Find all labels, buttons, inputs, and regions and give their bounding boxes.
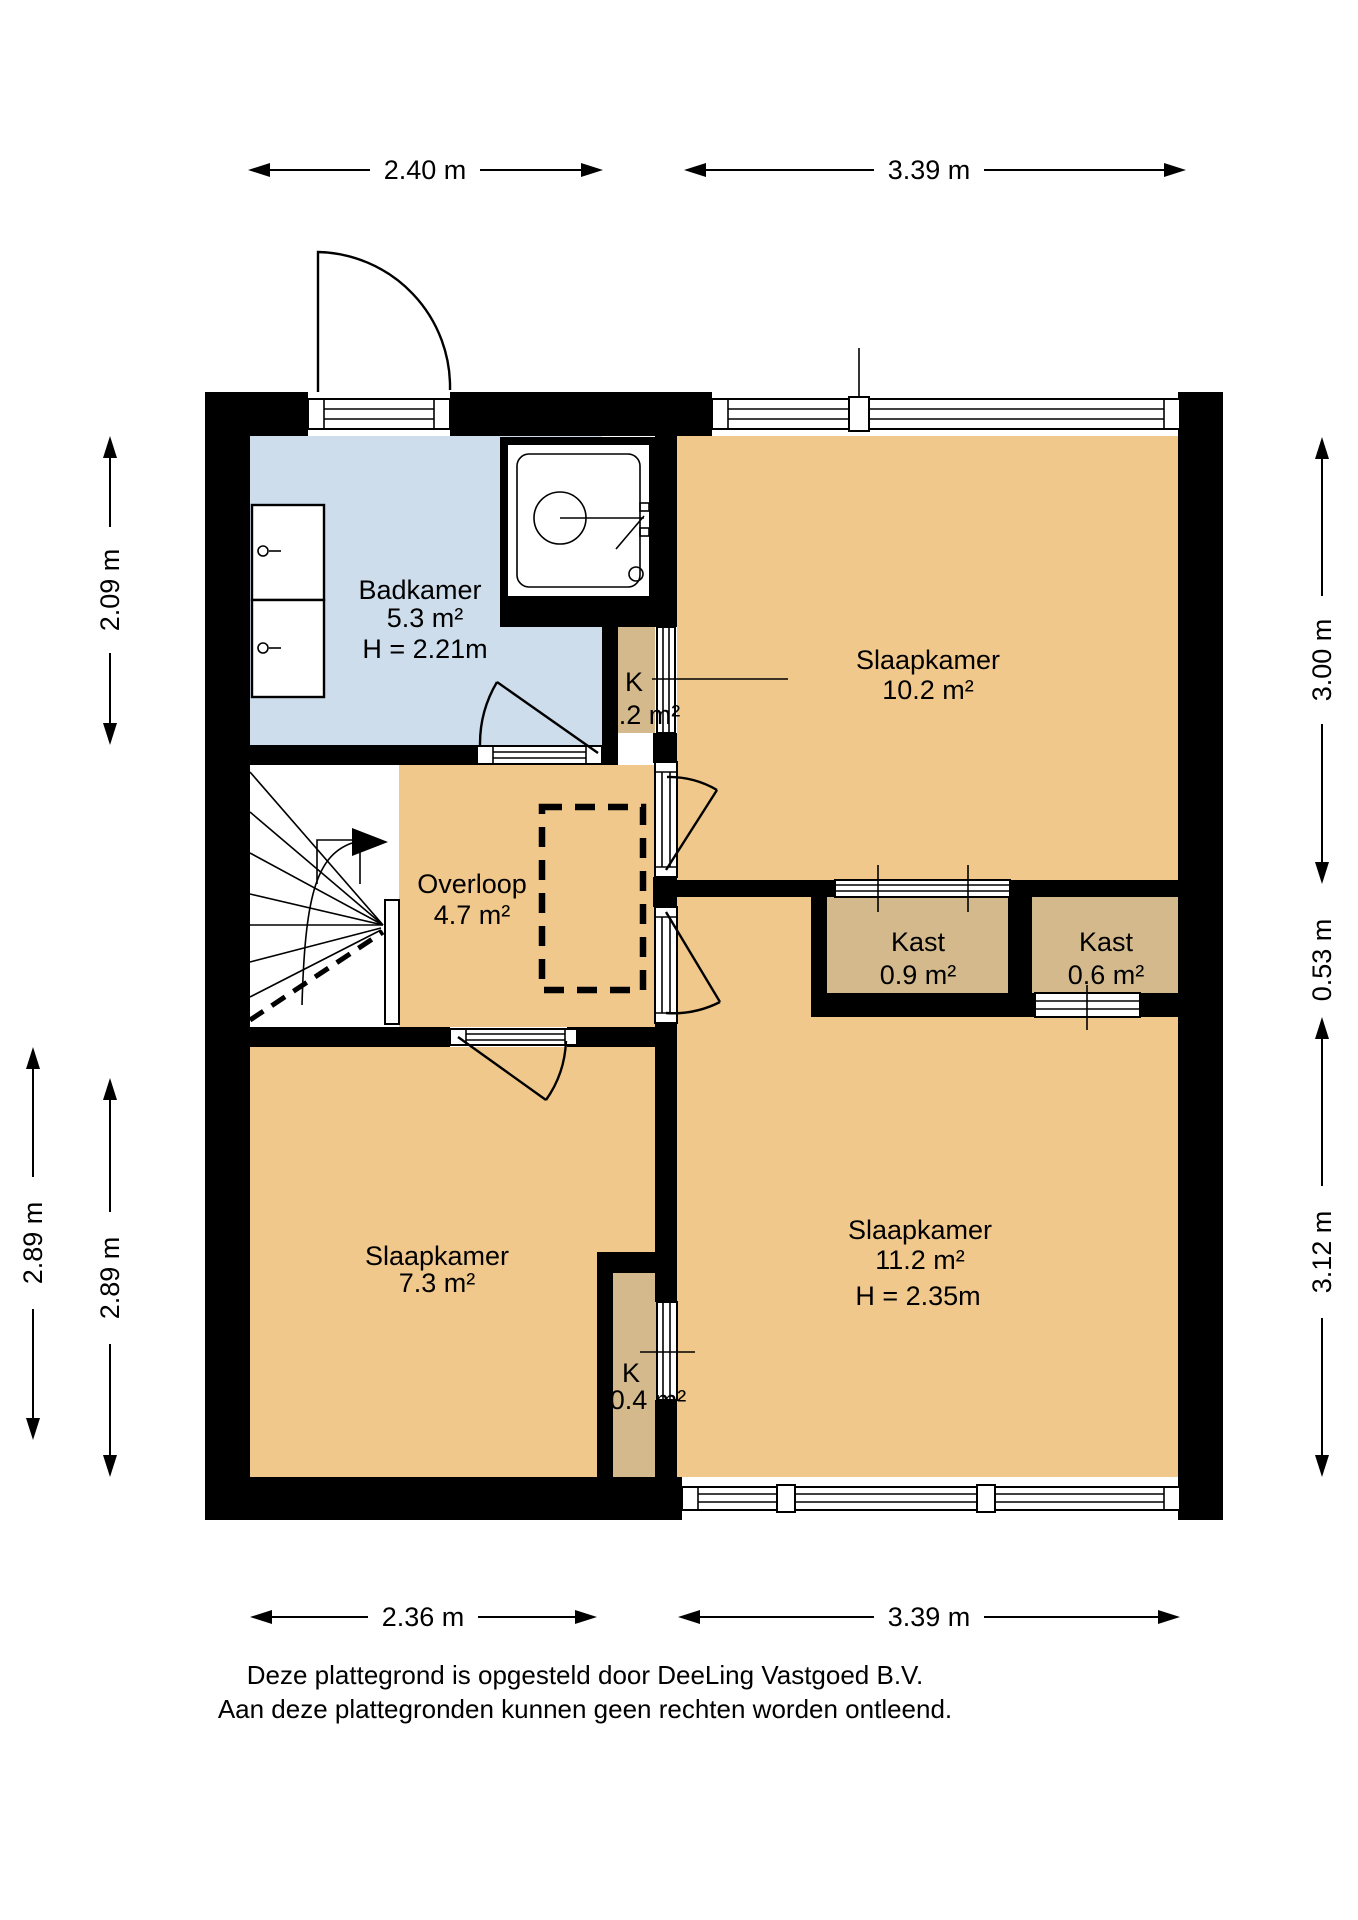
room-label-slaapkamer-rechtsboven: Slaapkamer <box>856 645 1000 675</box>
room-label-k-onder: K <box>622 1358 640 1388</box>
room-area-slaapkamer-linksonder: 7.3 m² <box>399 1268 476 1298</box>
stair-handrail <box>385 900 399 1024</box>
room-area-slaapkamer-rechtsboven: 10.2 m² <box>882 675 974 705</box>
room-label-kast-klein: Kast <box>1079 927 1134 957</box>
dimension-label: 2.36 m <box>382 1602 465 1632</box>
floor-plan: Badkamer 5.3 m² H = 2.21m Slaapkamer 10.… <box>0 0 1358 1920</box>
room-label-k-boven: K <box>625 667 643 697</box>
shower <box>500 437 657 604</box>
room-label-slaapkamer-linksonder: Slaapkamer <box>365 1241 509 1271</box>
washing-machine-stack <box>252 505 324 697</box>
dimension-label: 3.39 m <box>888 1602 971 1632</box>
dimension-label: 3.39 m <box>888 155 971 185</box>
room-label-slaapkamer-rechtsonder: Slaapkamer <box>848 1215 992 1245</box>
room-area-k-onder: 0.4 m² <box>610 1385 687 1415</box>
dimension-label: 2.09 m <box>95 549 125 632</box>
dimension-label: 0.53 m <box>1307 919 1337 1002</box>
room-label-kast-groot: Kast <box>891 927 946 957</box>
room-area-badkamer: 5.3 m² <box>387 603 464 633</box>
room-area-overloop: 4.7 m² <box>434 900 511 930</box>
stairwell-floor <box>250 765 399 1027</box>
room-label-badkamer: Badkamer <box>358 575 481 605</box>
dimension-label: 2.89 m <box>18 1202 48 1285</box>
dimension-label: 2.89 m <box>95 1237 125 1320</box>
room-area-kast-klein: 0.6 m² <box>1068 960 1145 990</box>
dimension-label: 3.00 m <box>1307 619 1337 702</box>
dimension-label: 2.40 m <box>384 155 467 185</box>
dimension-label: 3.12 m <box>1307 1211 1337 1294</box>
room-height-slaapkamer-rechtsonder: H = 2.35m <box>855 1281 980 1311</box>
footer-line-1: Deze plattegrond is opgesteld door DeeLi… <box>247 1660 923 1690</box>
window-bottom <box>682 1485 1180 1512</box>
room-area-kast-groot: 0.9 m² <box>880 960 957 990</box>
room-area-slaapkamer-rechtsonder: 11.2 m² <box>875 1245 965 1275</box>
threshold-badkamer-door <box>477 746 602 764</box>
threshold-slaapkamer3-door <box>450 1029 577 1045</box>
footer-line-2: Aan deze plattegronden kunnen geen recht… <box>218 1694 952 1724</box>
room-label-overloop: Overloop <box>417 869 527 899</box>
room-area-k-boven: 0.2 m² <box>604 700 681 730</box>
threshold-top-door <box>308 399 450 429</box>
room-height-badkamer: H = 2.21m <box>362 634 487 664</box>
